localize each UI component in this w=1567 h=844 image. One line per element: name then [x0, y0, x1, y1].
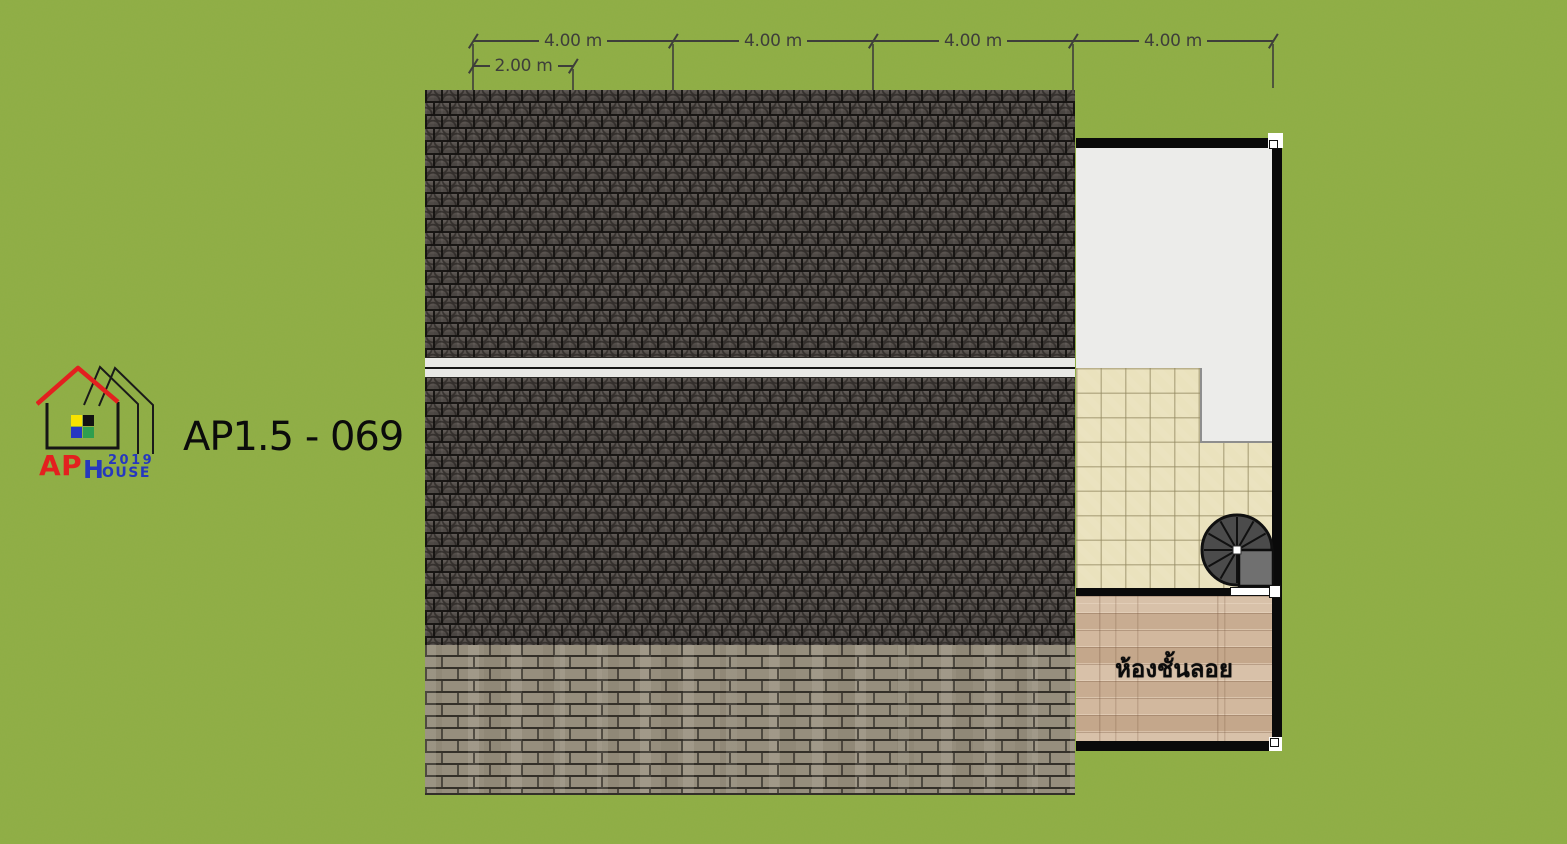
dim-line — [1007, 40, 1073, 42]
ridge-line — [425, 367, 1075, 369]
dim-segment-sub: 2.00 m — [473, 57, 574, 75]
dim-label: 4.00 m — [1139, 32, 1207, 50]
dim-segment: 4.00 m — [1073, 32, 1273, 50]
wall-right — [1272, 138, 1282, 751]
logo-square-black — [83, 415, 94, 426]
dim-line — [1073, 40, 1139, 42]
roof-ridge — [425, 357, 1075, 378]
house-outlines-icon — [36, 364, 166, 459]
dim-label: 4.00 m — [939, 32, 1007, 50]
dim-line — [1207, 40, 1273, 42]
logo-h-text: H — [83, 457, 104, 482]
door-opening-marker — [1230, 587, 1273, 596]
roof-upper-slope — [425, 90, 1075, 357]
dim-extension-line — [872, 44, 874, 90]
mezzanine-room-label: ห้องชั้นลอย — [1115, 649, 1233, 688]
dim-line — [873, 40, 939, 42]
dim-extension-line — [472, 44, 474, 90]
brand-logo: AP H 2019 OUSE — [36, 364, 171, 484]
dim-extension-line — [1072, 44, 1074, 90]
logo-square-yellow — [71, 415, 82, 426]
corner-marker-top-right-box — [1269, 140, 1278, 149]
dim-line — [807, 40, 873, 42]
floor-notch — [1200, 368, 1272, 443]
roof-eave-section — [425, 645, 1075, 795]
logo-square-green — [83, 427, 94, 438]
room-open-floor — [1076, 148, 1272, 368]
spiral-staircase-icon — [1199, 512, 1275, 588]
dim-extension-line — [672, 44, 674, 90]
stair-corner-marker — [1269, 585, 1281, 598]
wall-bottom — [1076, 741, 1282, 751]
dim-label: 4.00 m — [739, 32, 807, 50]
corner-marker-bottom-right-box — [1270, 738, 1279, 747]
dim-segment: 4.00 m — [873, 32, 1073, 50]
dim-label: 4.00 m — [539, 32, 607, 50]
roof-plan — [425, 90, 1075, 795]
room-mezzanine: ห้องชั้นลอย — [1076, 596, 1272, 741]
dim-extension-line — [1272, 44, 1274, 88]
dim-extension-line — [572, 69, 574, 90]
logo-ouse-text: OUSE — [102, 466, 151, 480]
logo-ap-text: AP — [39, 452, 82, 480]
dim-label: 2.00 m — [490, 57, 558, 75]
plan-canvas[interactable]: 4.00 m 4.00 m 4.00 m 4.00 m 2.00 m — [0, 0, 1567, 844]
wall-top — [1076, 138, 1283, 148]
dim-line — [473, 40, 539, 42]
dim-segment: 4.00 m — [473, 32, 673, 50]
dim-line — [607, 40, 673, 42]
dim-segment: 4.00 m — [673, 32, 873, 50]
plan-code-title: AP1.5 - 069 — [183, 414, 403, 460]
dim-line — [673, 40, 739, 42]
roof-lower-slope — [425, 378, 1075, 645]
logo-square-blue — [71, 427, 82, 438]
